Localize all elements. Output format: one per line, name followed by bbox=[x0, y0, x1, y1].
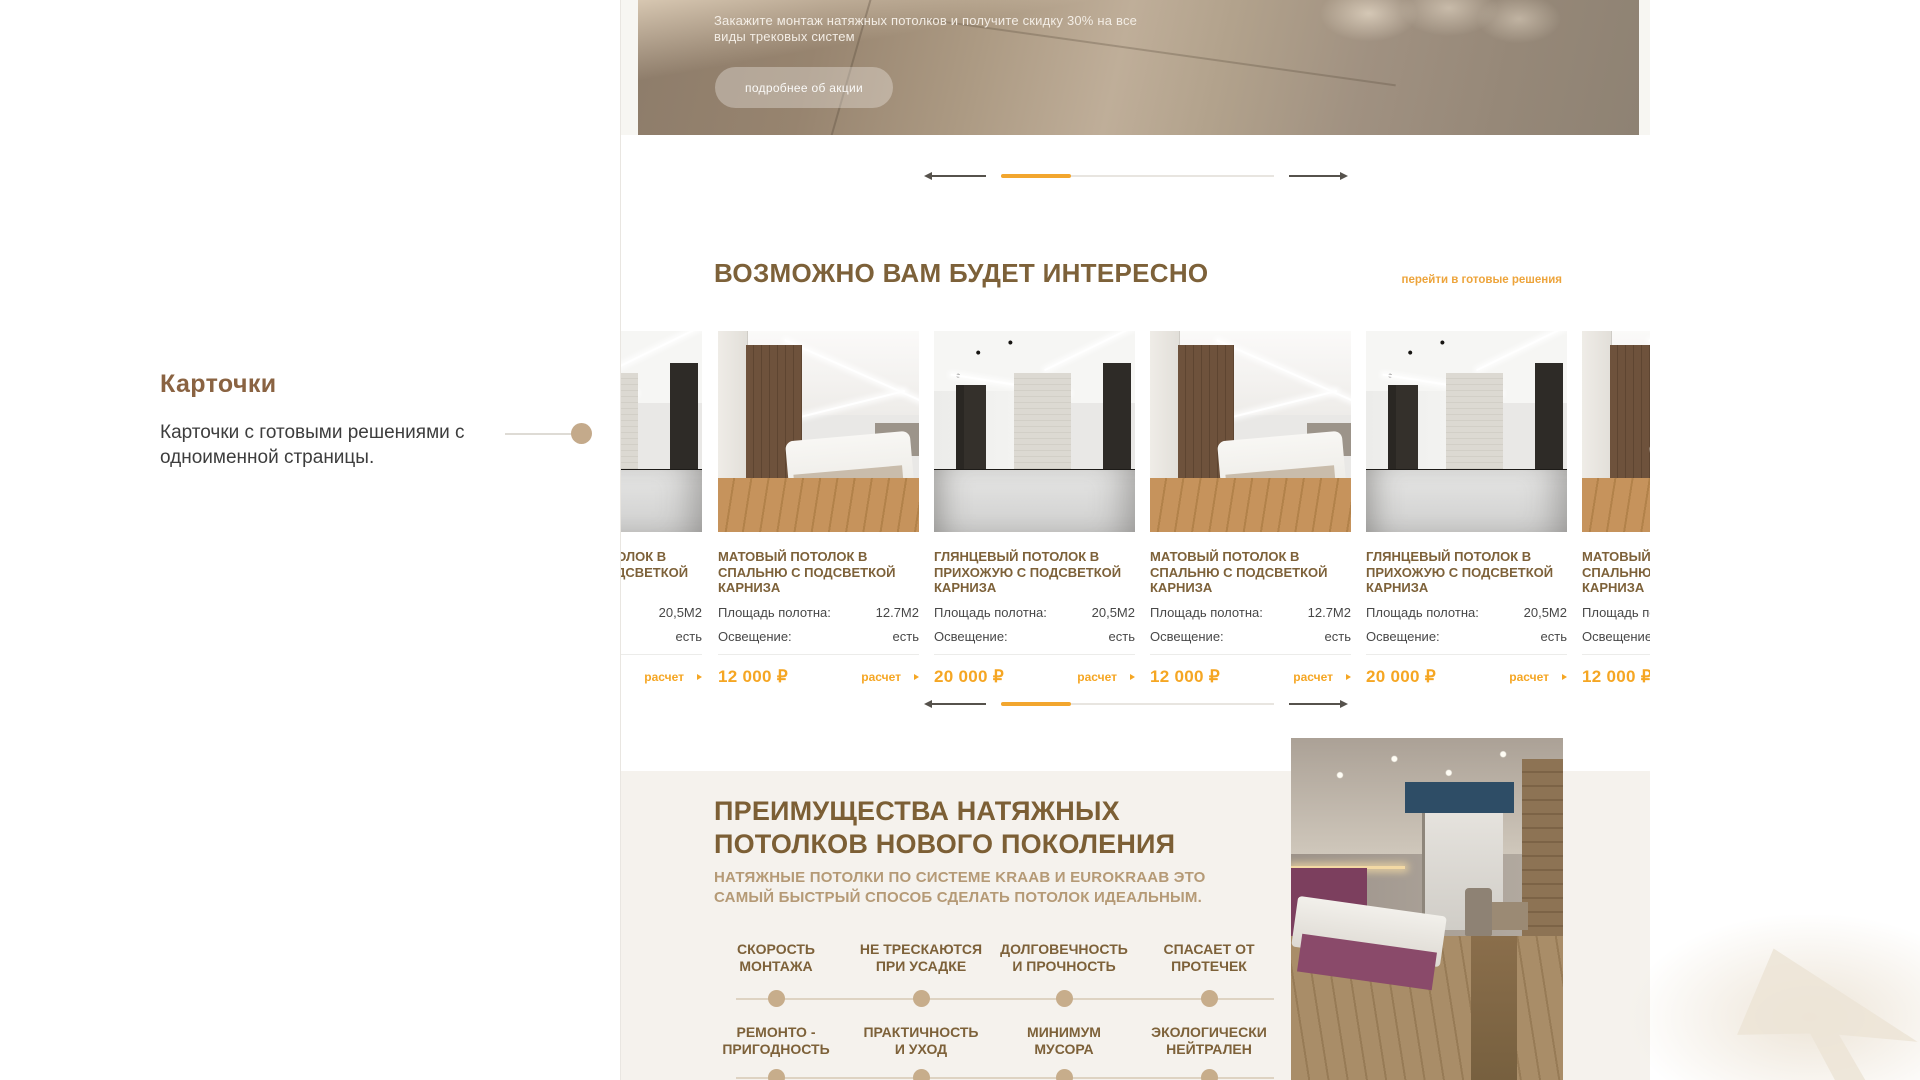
feature-label: СПАСАЕТ ОТ ПРОТЕЧЕК bbox=[1134, 941, 1284, 975]
feature-dot-icon bbox=[768, 990, 785, 1007]
spec-area-row: Площадь полотна:20,5М2 bbox=[620, 605, 702, 620]
product-photo bbox=[1150, 331, 1351, 532]
calc-arrow-icon bbox=[1346, 674, 1351, 680]
spec-light-row: Освещение:есть bbox=[1582, 629, 1650, 644]
feature-label: МИНИМУМ МУСОРА bbox=[989, 1024, 1139, 1058]
feature-label: НЕ ТРЕСКАЮТСЯ ПРИ УСАДКЕ bbox=[846, 941, 996, 975]
feature-label: ЭКОЛОГИЧЕСКИ НЕЙТРАЛЕН bbox=[1134, 1024, 1284, 1058]
product-price: 12 000 ₽ bbox=[718, 667, 788, 687]
spec-area-row: Площадь полотна:12.7М2 bbox=[718, 605, 919, 620]
banner-carousel-nav bbox=[926, 172, 1346, 182]
product-card[interactable]: МАТОВЫЙ ПОТОЛОК В СПАЛЬНЮ С ПОДСВЕТКОЙ К… bbox=[718, 331, 919, 687]
price-row: 12 000 ₽ расчет bbox=[718, 667, 919, 687]
product-card[interactable]: ГЛЯНЦЕВЫЙ ПОТОЛОК В ПРИХОЖУЮ С ПОДСВЕТКО… bbox=[1366, 331, 1567, 687]
spec-light-value: есть bbox=[676, 629, 702, 644]
price-row: 20 000 ₽ расчет bbox=[620, 667, 702, 687]
product-card[interactable]: МАТОВЫЙ ПОТОЛОК В СПАЛЬНЮ С ПОДСВЕТКОЙ К… bbox=[1582, 331, 1650, 687]
advantages-subtitle: НАТЯЖНЫЕ ПОТОЛКИ ПО СИСТЕМЕ KRAAB И EURO… bbox=[714, 868, 1205, 908]
spec-light-row: Освещение:есть bbox=[1366, 629, 1567, 644]
promo-details-button[interactable]: подробнее об акции bbox=[715, 67, 893, 108]
card-divider bbox=[620, 654, 702, 655]
spec-light-label: Освещение: bbox=[1366, 629, 1440, 644]
promo-banner-text: Закажите монтаж натяжных потолков и полу… bbox=[714, 13, 1137, 44]
price-row: 12 000 ₽ расчет bbox=[1582, 667, 1650, 687]
spec-area-value: 20,5М2 bbox=[659, 605, 702, 620]
feature-label: СКОРОСТЬ МОНТАЖА bbox=[701, 941, 851, 975]
advantages-subtitle-line2: САМЫЙ БЫСТРЫЙ СПОСОБ СДЕЛАТЬ ПОТОЛОК ИДЕ… bbox=[714, 888, 1205, 908]
product-title: ГЛЯНЦЕВЫЙ ПОТОЛОК В ПРИХОЖУЮ С ПОДСВЕТКО… bbox=[934, 549, 1135, 596]
spec-light-row: Освещение:есть bbox=[934, 629, 1135, 644]
feature-label: ПРАКТИЧНОСТЬ И УХОД bbox=[846, 1024, 996, 1058]
spec-area-value: 20,5М2 bbox=[1524, 605, 1567, 620]
spec-area-label: Площадь полотна: bbox=[1366, 605, 1479, 620]
product-photo bbox=[934, 331, 1135, 532]
carousel-progress-fill[interactable] bbox=[1001, 174, 1071, 178]
feature-dot-icon bbox=[1056, 1069, 1073, 1080]
card-divider bbox=[1582, 654, 1650, 655]
section-title: ВОЗМОЖНО ВАМ БУДЕТ ИНТЕРЕСНО bbox=[714, 258, 1208, 289]
feature-dot-icon bbox=[913, 1069, 930, 1080]
product-card[interactable]: ГЛЯНЦЕВЫЙ ПОТОЛОК В ПРИХОЖУЮ С ПОДСВЕТКО… bbox=[934, 331, 1135, 687]
annotation-connector-line bbox=[505, 433, 573, 435]
calc-arrow-icon bbox=[914, 674, 919, 680]
product-title: ГЛЯНЦЕВЫЙ ПОТОЛОК В ПРИХОЖУЮ С ПОДСВЕТКО… bbox=[620, 549, 702, 596]
calc-arrow-icon bbox=[1562, 674, 1567, 680]
annotation-description: Карточки с готовыми решениями с одноимен… bbox=[160, 420, 472, 470]
carousel-progress-track[interactable] bbox=[1001, 703, 1274, 705]
feature-dot-icon bbox=[1201, 990, 1218, 1007]
spec-light-row: Освещение:есть bbox=[718, 629, 919, 644]
product-photo bbox=[718, 331, 919, 532]
annotation-marker-dot-icon bbox=[571, 423, 592, 444]
carousel-progress-track[interactable] bbox=[1001, 175, 1274, 177]
spec-area-row: Площадь полотна:20,5М2 bbox=[934, 605, 1135, 620]
feature-timeline bbox=[736, 998, 1274, 1000]
calc-link[interactable]: расчет bbox=[1293, 670, 1351, 684]
spec-area-row: Площадь полотна:12.7М2 bbox=[1582, 605, 1650, 620]
spec-area-value: 12.7М2 bbox=[876, 605, 919, 620]
product-title: МАТОВЫЙ ПОТОЛОК В СПАЛЬНЮ С ПОДСВЕТКОЙ К… bbox=[1582, 549, 1650, 596]
calc-arrow-icon bbox=[697, 674, 702, 680]
product-price: 12 000 ₽ bbox=[1150, 667, 1220, 687]
spec-light-label: Освещение: bbox=[1582, 629, 1650, 644]
card-divider bbox=[1150, 654, 1351, 655]
spec-light-label: Освещение: bbox=[1150, 629, 1224, 644]
product-price: 12 000 ₽ bbox=[1582, 667, 1650, 687]
product-card[interactable]: ГЛЯНЦЕВЫЙ ПОТОЛОК В ПРИХОЖУЮ С ПОДСВЕТКО… bbox=[620, 331, 702, 687]
product-title: МАТОВЫЙ ПОТОЛОК В СПАЛЬНЮ С ПОДСВЕТКОЙ К… bbox=[1150, 549, 1351, 596]
bedroom-photo bbox=[1291, 738, 1563, 1080]
carousel-prev-arrow-icon[interactable] bbox=[926, 703, 986, 705]
advantages-title-line1: ПРЕИМУЩЕСТВА НАТЯЖНЫХ bbox=[714, 795, 1175, 828]
spec-area-label: Площадь полотна: bbox=[934, 605, 1047, 620]
spec-area-value: 20,5М2 bbox=[1092, 605, 1135, 620]
price-row: 12 000 ₽ расчет bbox=[1150, 667, 1351, 687]
spec-area-label: Площадь полотна: bbox=[1582, 605, 1650, 620]
spec-light-label: Освещение: bbox=[718, 629, 792, 644]
promo-banner[interactable]: Закажите монтаж натяжных потолков и полу… bbox=[638, 0, 1639, 135]
cards-carousel: ГЛЯНЦЕВЫЙ ПОТОЛОК В ПРИХОЖУЮ С ПОДСВЕТКО… bbox=[621, 331, 1650, 676]
spec-light-value: есть bbox=[1325, 629, 1351, 644]
product-title: МАТОВЫЙ ПОТОЛОК В СПАЛЬНЮ С ПОДСВЕТКОЙ К… bbox=[718, 549, 919, 596]
card-divider bbox=[1366, 654, 1567, 655]
carousel-prev-arrow-icon[interactable] bbox=[926, 175, 986, 177]
go-to-solutions-link[interactable]: перейти в готовые решения bbox=[1402, 274, 1562, 286]
carousel-progress-fill[interactable] bbox=[1001, 702, 1071, 706]
card-divider bbox=[718, 654, 919, 655]
product-title: ГЛЯНЦЕВЫЙ ПОТОЛОК В ПРИХОЖУЮ С ПОДСВЕТКО… bbox=[1366, 549, 1567, 596]
spec-light-row: Освещение:есть bbox=[1150, 629, 1351, 644]
calc-link[interactable]: расчет bbox=[1077, 670, 1135, 684]
feature-timeline bbox=[736, 1077, 1274, 1079]
product-photo bbox=[1366, 331, 1567, 532]
cards-carousel-nav bbox=[926, 700, 1346, 710]
spec-area-label: Площадь полотна: bbox=[718, 605, 831, 620]
spec-light-value: есть bbox=[1109, 629, 1135, 644]
annotation-title: Карточки bbox=[160, 370, 277, 399]
feature-dot-icon bbox=[768, 1069, 785, 1080]
spec-area-label: Площадь полотна: bbox=[1150, 605, 1263, 620]
calc-link[interactable]: расчет bbox=[861, 670, 919, 684]
feature-dot-icon bbox=[1056, 990, 1073, 1007]
price-row: 20 000 ₽ расчет bbox=[934, 667, 1135, 687]
calc-arrow-icon bbox=[1130, 674, 1135, 680]
feature-dot-icon bbox=[1201, 1069, 1218, 1080]
price-row: 20 000 ₽ расчет bbox=[1366, 667, 1567, 687]
calc-link[interactable]: расчет bbox=[644, 670, 702, 684]
product-photo bbox=[620, 331, 702, 532]
spec-light-label: Освещение: bbox=[934, 629, 1008, 644]
product-photo bbox=[1582, 331, 1650, 532]
spec-light-row: Освещение:есть bbox=[620, 629, 702, 644]
advantages-title-line2: ПОТОЛКОВ НОВОГО ПОКОЛЕНИЯ bbox=[714, 828, 1175, 861]
promo-line-1: Закажите монтаж натяжных потолков и полу… bbox=[714, 13, 1137, 29]
advantages-title: ПРЕИМУЩЕСТВА НАТЯЖНЫХ ПОТОЛКОВ НОВОГО ПО… bbox=[714, 795, 1175, 861]
product-card[interactable]: МАТОВЫЙ ПОТОЛОК В СПАЛЬНЮ С ПОДСВЕТКОЙ К… bbox=[1150, 331, 1351, 687]
carousel-next-arrow-icon[interactable] bbox=[1289, 703, 1346, 705]
feature-label: РЕМОНТО - ПРИГОДНОСТЬ bbox=[701, 1024, 851, 1058]
calc-link[interactable]: расчет bbox=[1509, 670, 1567, 684]
spec-area-value: 12.7М2 bbox=[1308, 605, 1351, 620]
feature-dot-icon bbox=[913, 990, 930, 1007]
promo-line-2: виды трековых систем bbox=[714, 29, 1137, 45]
spec-area-row: Площадь полотна:20,5М2 bbox=[1366, 605, 1567, 620]
website-screenshot-frame: Закажите монтаж натяжных потолков и полу… bbox=[620, 0, 1650, 1080]
card-divider bbox=[934, 654, 1135, 655]
spec-area-row: Площадь полотна:12.7М2 bbox=[1150, 605, 1351, 620]
advantages-subtitle-line1: НАТЯЖНЫЕ ПОТОЛКИ ПО СИСТЕМЕ KRAAB И EURO… bbox=[714, 868, 1205, 888]
spec-light-value: есть bbox=[1541, 629, 1567, 644]
spec-light-value: есть bbox=[893, 629, 919, 644]
feature-label: ДОЛГОВЕЧНОСТЬ И ПРОЧНОСТЬ bbox=[989, 941, 1139, 975]
product-price: 20 000 ₽ bbox=[1366, 667, 1436, 687]
carousel-next-arrow-icon[interactable] bbox=[1289, 175, 1346, 177]
product-price: 20 000 ₽ bbox=[934, 667, 1004, 687]
